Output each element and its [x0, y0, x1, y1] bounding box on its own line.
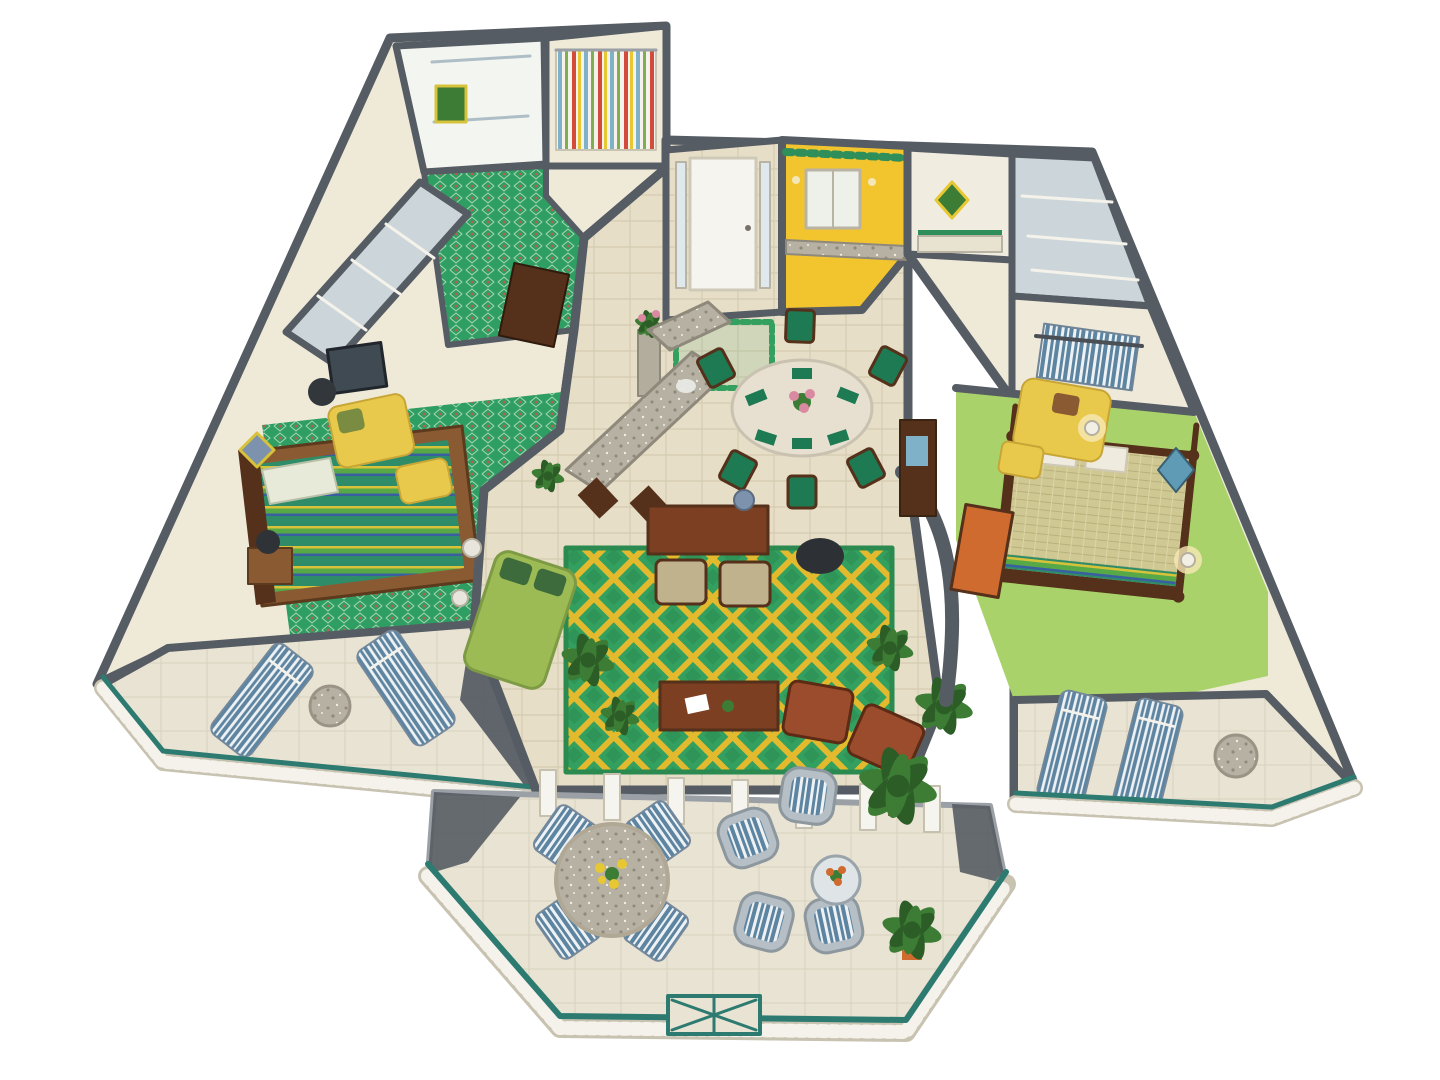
desk-armchair [656, 560, 706, 604]
tv-armoire [900, 420, 936, 516]
tv-screen [906, 436, 928, 466]
console-lamp [463, 539, 481, 557]
guest-bathroom-shower [396, 38, 546, 172]
desk-armchair [720, 562, 770, 606]
master-bathroom [908, 148, 1012, 260]
dark-side-chair [796, 538, 844, 574]
balcony-side-table [310, 686, 350, 726]
patio-door-post [540, 770, 556, 816]
placemat [792, 368, 812, 379]
railing-gate-panel [668, 996, 760, 1034]
floor-plan-page: 3D floor plan rendering of a two-bedroom… [0, 0, 1440, 1080]
console-lamp [452, 590, 468, 606]
vanity [918, 236, 1002, 252]
linen-closet [1012, 154, 1150, 306]
floor-lamp [308, 378, 336, 406]
bedside-lamp [1085, 421, 1099, 435]
master-ottoman [998, 441, 1045, 480]
floor-plan-3d-view: 3D floor plan rendering of a two-bedroom… [0, 0, 1440, 1080]
writing-desk [648, 506, 768, 554]
wicker-chair [778, 766, 839, 827]
dining-chair [788, 476, 816, 508]
bathroom-wall-art [436, 86, 466, 122]
door-sidelight [760, 162, 770, 288]
balcony-side-table [1215, 735, 1257, 777]
wall-sconce [868, 178, 876, 186]
table-plant [722, 700, 734, 712]
bar-sink [676, 379, 696, 393]
patio-door-post [604, 774, 620, 820]
door-sidelight [676, 162, 686, 288]
striped-shower-curtain [556, 50, 656, 150]
master-suite [900, 146, 1356, 820]
door-knob [745, 225, 751, 231]
desk-lamp [734, 490, 754, 510]
placemat [792, 438, 812, 449]
table-lamp [256, 530, 280, 554]
brown-lounge-chair [782, 680, 854, 744]
coffee-table [660, 682, 778, 730]
dining-chair [785, 310, 814, 343]
framed-dark-art [327, 342, 387, 393]
bedside-lamp [1181, 553, 1195, 567]
entry-door [690, 158, 756, 290]
wall-sconce [792, 176, 800, 184]
